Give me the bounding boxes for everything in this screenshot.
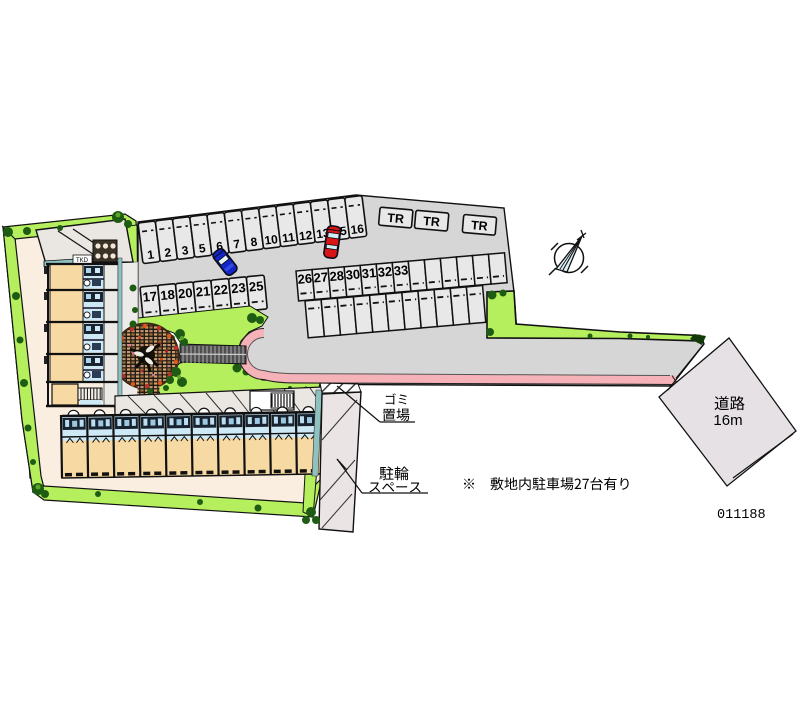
svg-text:10: 10 — [264, 232, 279, 248]
svg-text:12: 12 — [298, 228, 313, 244]
svg-text:11: 11 — [281, 230, 296, 245]
svg-text:17: 17 — [142, 288, 158, 304]
svg-text:33: 33 — [393, 262, 409, 278]
svg-text:23: 23 — [231, 280, 247, 296]
svg-text:21: 21 — [195, 283, 211, 299]
svg-text:18: 18 — [160, 287, 176, 303]
svg-text:TR: TR — [470, 218, 488, 233]
svg-text:32: 32 — [377, 264, 393, 280]
svg-text:26: 26 — [297, 271, 313, 287]
svg-text:27: 27 — [313, 269, 329, 285]
svg-text:TR: TR — [423, 214, 441, 229]
svg-text:16m: 16m — [713, 412, 742, 429]
svg-text:30: 30 — [345, 266, 361, 282]
svg-text:20: 20 — [177, 285, 193, 301]
svg-text:31: 31 — [361, 265, 377, 281]
svg-text:25: 25 — [248, 278, 264, 294]
svg-text:28: 28 — [329, 268, 345, 284]
svg-text:16: 16 — [350, 222, 365, 238]
svg-text:011188: 011188 — [717, 508, 766, 523]
svg-text:TR: TR — [387, 211, 405, 226]
svg-text:22: 22 — [213, 282, 229, 298]
